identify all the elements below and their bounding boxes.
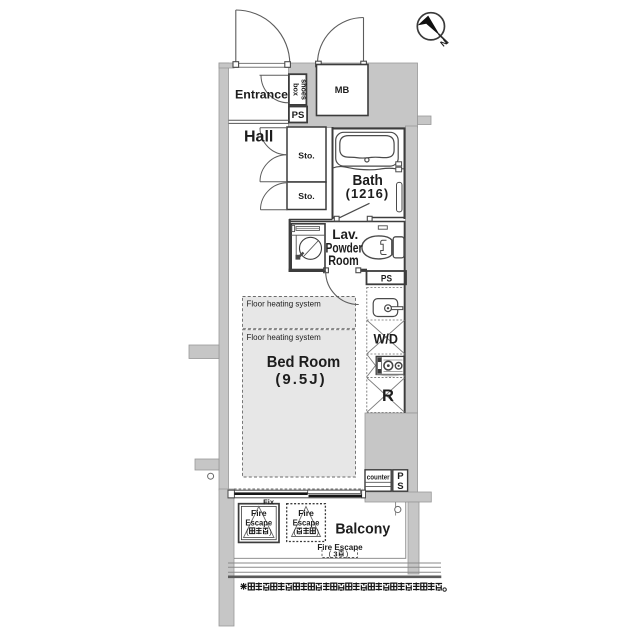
svg-text:Floor heating system: Floor heating system bbox=[247, 300, 322, 309]
svg-text:): ) bbox=[316, 528, 319, 537]
svg-text:Bed Room: Bed Room bbox=[267, 354, 341, 372]
svg-text:(: ( bbox=[329, 550, 332, 559]
svg-text:Escape: Escape bbox=[293, 518, 320, 527]
svg-text:Fire: Fire bbox=[298, 508, 314, 518]
svg-text:counter: counter bbox=[367, 474, 390, 482]
svg-text:PS: PS bbox=[381, 273, 392, 284]
svg-text:R: R bbox=[382, 387, 394, 405]
svg-text:W/D: W/D bbox=[374, 331, 399, 347]
svg-text:Floor heating system: Floor heating system bbox=[247, 333, 322, 342]
svg-text:Fix: Fix bbox=[263, 497, 275, 506]
svg-text:Balcony: Balcony bbox=[335, 521, 391, 537]
svg-text:Fire: Fire bbox=[251, 508, 267, 518]
svg-text:3: 3 bbox=[333, 549, 337, 558]
svg-text:): ) bbox=[269, 528, 272, 537]
svg-text:PS: PS bbox=[292, 110, 305, 121]
svg-text:S: S bbox=[397, 481, 403, 492]
svg-text:MB: MB bbox=[335, 85, 350, 95]
svg-text:(1216): (1216) bbox=[346, 186, 390, 201]
svg-text:Entrance: Entrance bbox=[235, 88, 288, 102]
svg-text:(9.5J): (9.5J) bbox=[275, 371, 326, 388]
svg-text:Escape: Escape bbox=[245, 518, 272, 527]
svg-text:Sto.: Sto. bbox=[298, 150, 314, 160]
svg-text:Fire Escape: Fire Escape bbox=[317, 542, 363, 552]
svg-text:(: ( bbox=[293, 528, 296, 537]
svg-text:Hall: Hall bbox=[244, 129, 273, 146]
svg-text:Room: Room bbox=[328, 253, 359, 268]
svg-text:Sto.: Sto. bbox=[298, 191, 314, 201]
svg-text:(: ( bbox=[246, 528, 249, 537]
svg-text:): ) bbox=[346, 550, 349, 559]
